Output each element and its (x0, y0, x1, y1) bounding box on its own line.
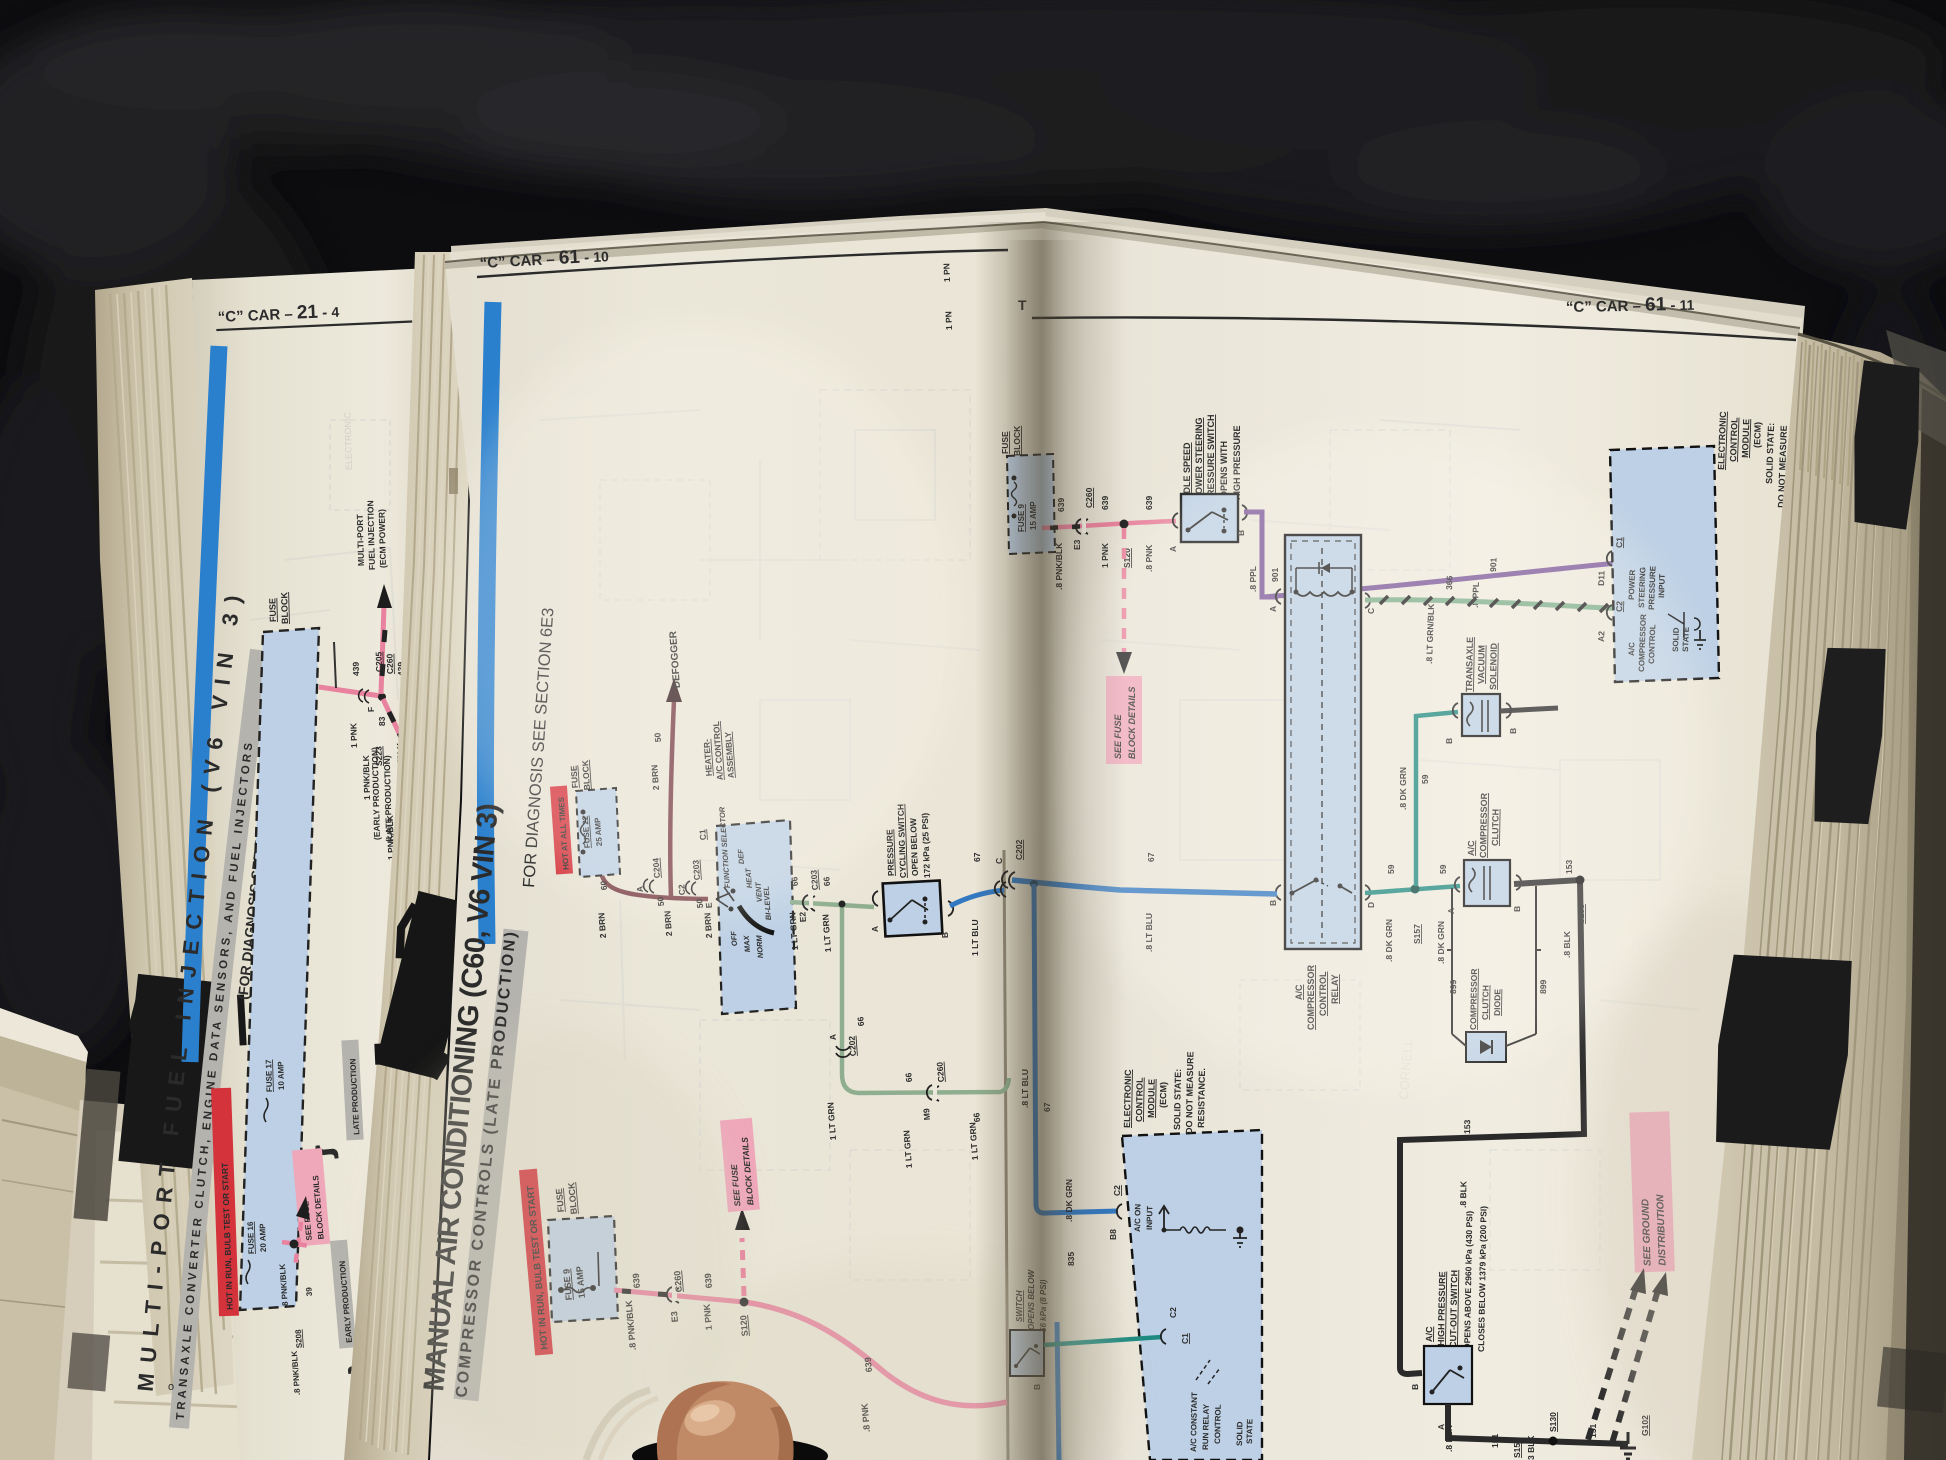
svg-text:66: 66 (855, 1016, 866, 1026)
svg-text:RUN RELAY: RUN RELAY (1201, 1403, 1211, 1450)
svg-text:E2: E2 (797, 911, 808, 922)
svg-text:SOLID STATE:: SOLID STATE: (1764, 423, 1776, 484)
svg-text:153: 153 (1462, 1119, 1472, 1134)
svg-text:CONTROL: CONTROL (1728, 417, 1740, 462)
svg-text:C1: C1 (1180, 1333, 1190, 1344)
svg-text:151: 151 (1490, 1434, 1500, 1448)
svg-text:NORM: NORM (754, 934, 765, 958)
svg-text:S130: S130 (1548, 1412, 1558, 1432)
svg-text:OPEN BELOW: OPEN BELOW (908, 817, 920, 876)
svg-text:DO NOT MEASURE: DO NOT MEASURE (1184, 1051, 1195, 1134)
svg-text:83: 83 (377, 716, 387, 726)
svg-text:C2: C2 (1168, 1307, 1178, 1318)
svg-text:1 PN: 1 PN (941, 263, 952, 282)
svg-text:MODULE: MODULE (1740, 419, 1751, 458)
svg-text:MODULE: MODULE (1146, 1079, 1157, 1118)
svg-text:ELECTRONIC: ELECTRONIC (342, 411, 354, 470)
svg-text:CONTROL: CONTROL (1213, 1404, 1223, 1444)
svg-text:FUSE 17: FUSE 17 (264, 1059, 274, 1092)
svg-text:10 AMP: 10 AMP (276, 1061, 286, 1090)
svg-text:SOLID STATE:: SOLID STATE: (1172, 1069, 1183, 1130)
svg-text:A: A (828, 1034, 838, 1041)
svg-text:FUSE 16: FUSE 16 (246, 1221, 256, 1254)
svg-text:(ECM POWER): (ECM POWER) (376, 509, 388, 568)
svg-text:STATE: STATE (1245, 1418, 1254, 1444)
svg-text:B: B (1410, 1384, 1420, 1390)
svg-text:66: 66 (903, 1072, 914, 1082)
svg-text:39: 39 (304, 1286, 314, 1296)
svg-text:CUT-OUT SWITCH: CUT-OUT SWITCH (1448, 1270, 1459, 1348)
svg-text:OFF: OFF (729, 930, 739, 946)
svg-text:MAX: MAX (742, 934, 752, 952)
svg-text:20 AMP: 20 AMP (258, 1223, 268, 1253)
svg-text:A/C ON: A/C ON (1133, 1204, 1142, 1232)
svg-text:FUSE: FUSE (267, 598, 278, 622)
svg-text:F: F (366, 707, 376, 712)
svg-text:S208: S208 (294, 1329, 304, 1349)
svg-text:A: A (870, 926, 880, 932)
svg-text:(ECM): (ECM) (1752, 422, 1763, 448)
svg-text:C260: C260 (384, 653, 395, 674)
svg-text:INPUT: INPUT (1145, 1206, 1154, 1230)
svg-text:BLOCK: BLOCK (279, 591, 290, 624)
svg-text:.8 BLK: .8 BLK (1444, 1424, 1454, 1452)
svg-text:SOLID: SOLID (1235, 1421, 1244, 1446)
svg-text:IDLE SPEED: IDLE SPEED (1182, 442, 1192, 496)
svg-text:HIGH PRESSURE: HIGH PRESSURE (1436, 1271, 1447, 1346)
svg-text:S159: S159 (1512, 1438, 1522, 1458)
svg-text:CONTROL: CONTROL (1134, 1077, 1145, 1122)
svg-text:M9: M9 (921, 1108, 932, 1121)
svg-text:o: o (168, 1381, 174, 1393)
svg-text:.8 BLK: .8 BLK (1458, 1180, 1468, 1208)
svg-text:FUEL INJECTION: FUEL INJECTION (365, 500, 377, 570)
svg-text:3 BLK: 3 BLK (1526, 1435, 1536, 1460)
svg-text:(ECM): (ECM) (1158, 1082, 1168, 1108)
svg-text:B: B (940, 932, 950, 938)
svg-text:ELECTRONIC: ELECTRONIC (1716, 411, 1728, 470)
svg-text:1 PNK/BLK: 1 PNK/BLK (361, 754, 372, 800)
svg-text:439: 439 (351, 661, 361, 676)
svg-text:1 PNK: 1 PNK (348, 722, 359, 748)
svg-text:C202: C202 (847, 1035, 858, 1056)
svg-text:PRESSURE: PRESSURE (884, 829, 896, 876)
svg-text:2 BRN: 2 BRN (596, 912, 608, 938)
svg-text:S223: S223 (373, 746, 384, 766)
svg-text:1 PN: 1 PN (943, 311, 954, 330)
svg-text:C260: C260 (935, 1061, 946, 1082)
svg-text:A/C: A/C (1424, 1326, 1434, 1342)
svg-text:RESISTANCE.: RESISTANCE. (1196, 1068, 1207, 1128)
svg-text:639: 639 (1144, 496, 1154, 510)
svg-text:A/C CONSTANT: A/C CONSTANT (1189, 1392, 1199, 1452)
svg-text:MULTI-PORT: MULTI-PORT (355, 513, 366, 566)
svg-text:C205: C205 (373, 651, 384, 672)
